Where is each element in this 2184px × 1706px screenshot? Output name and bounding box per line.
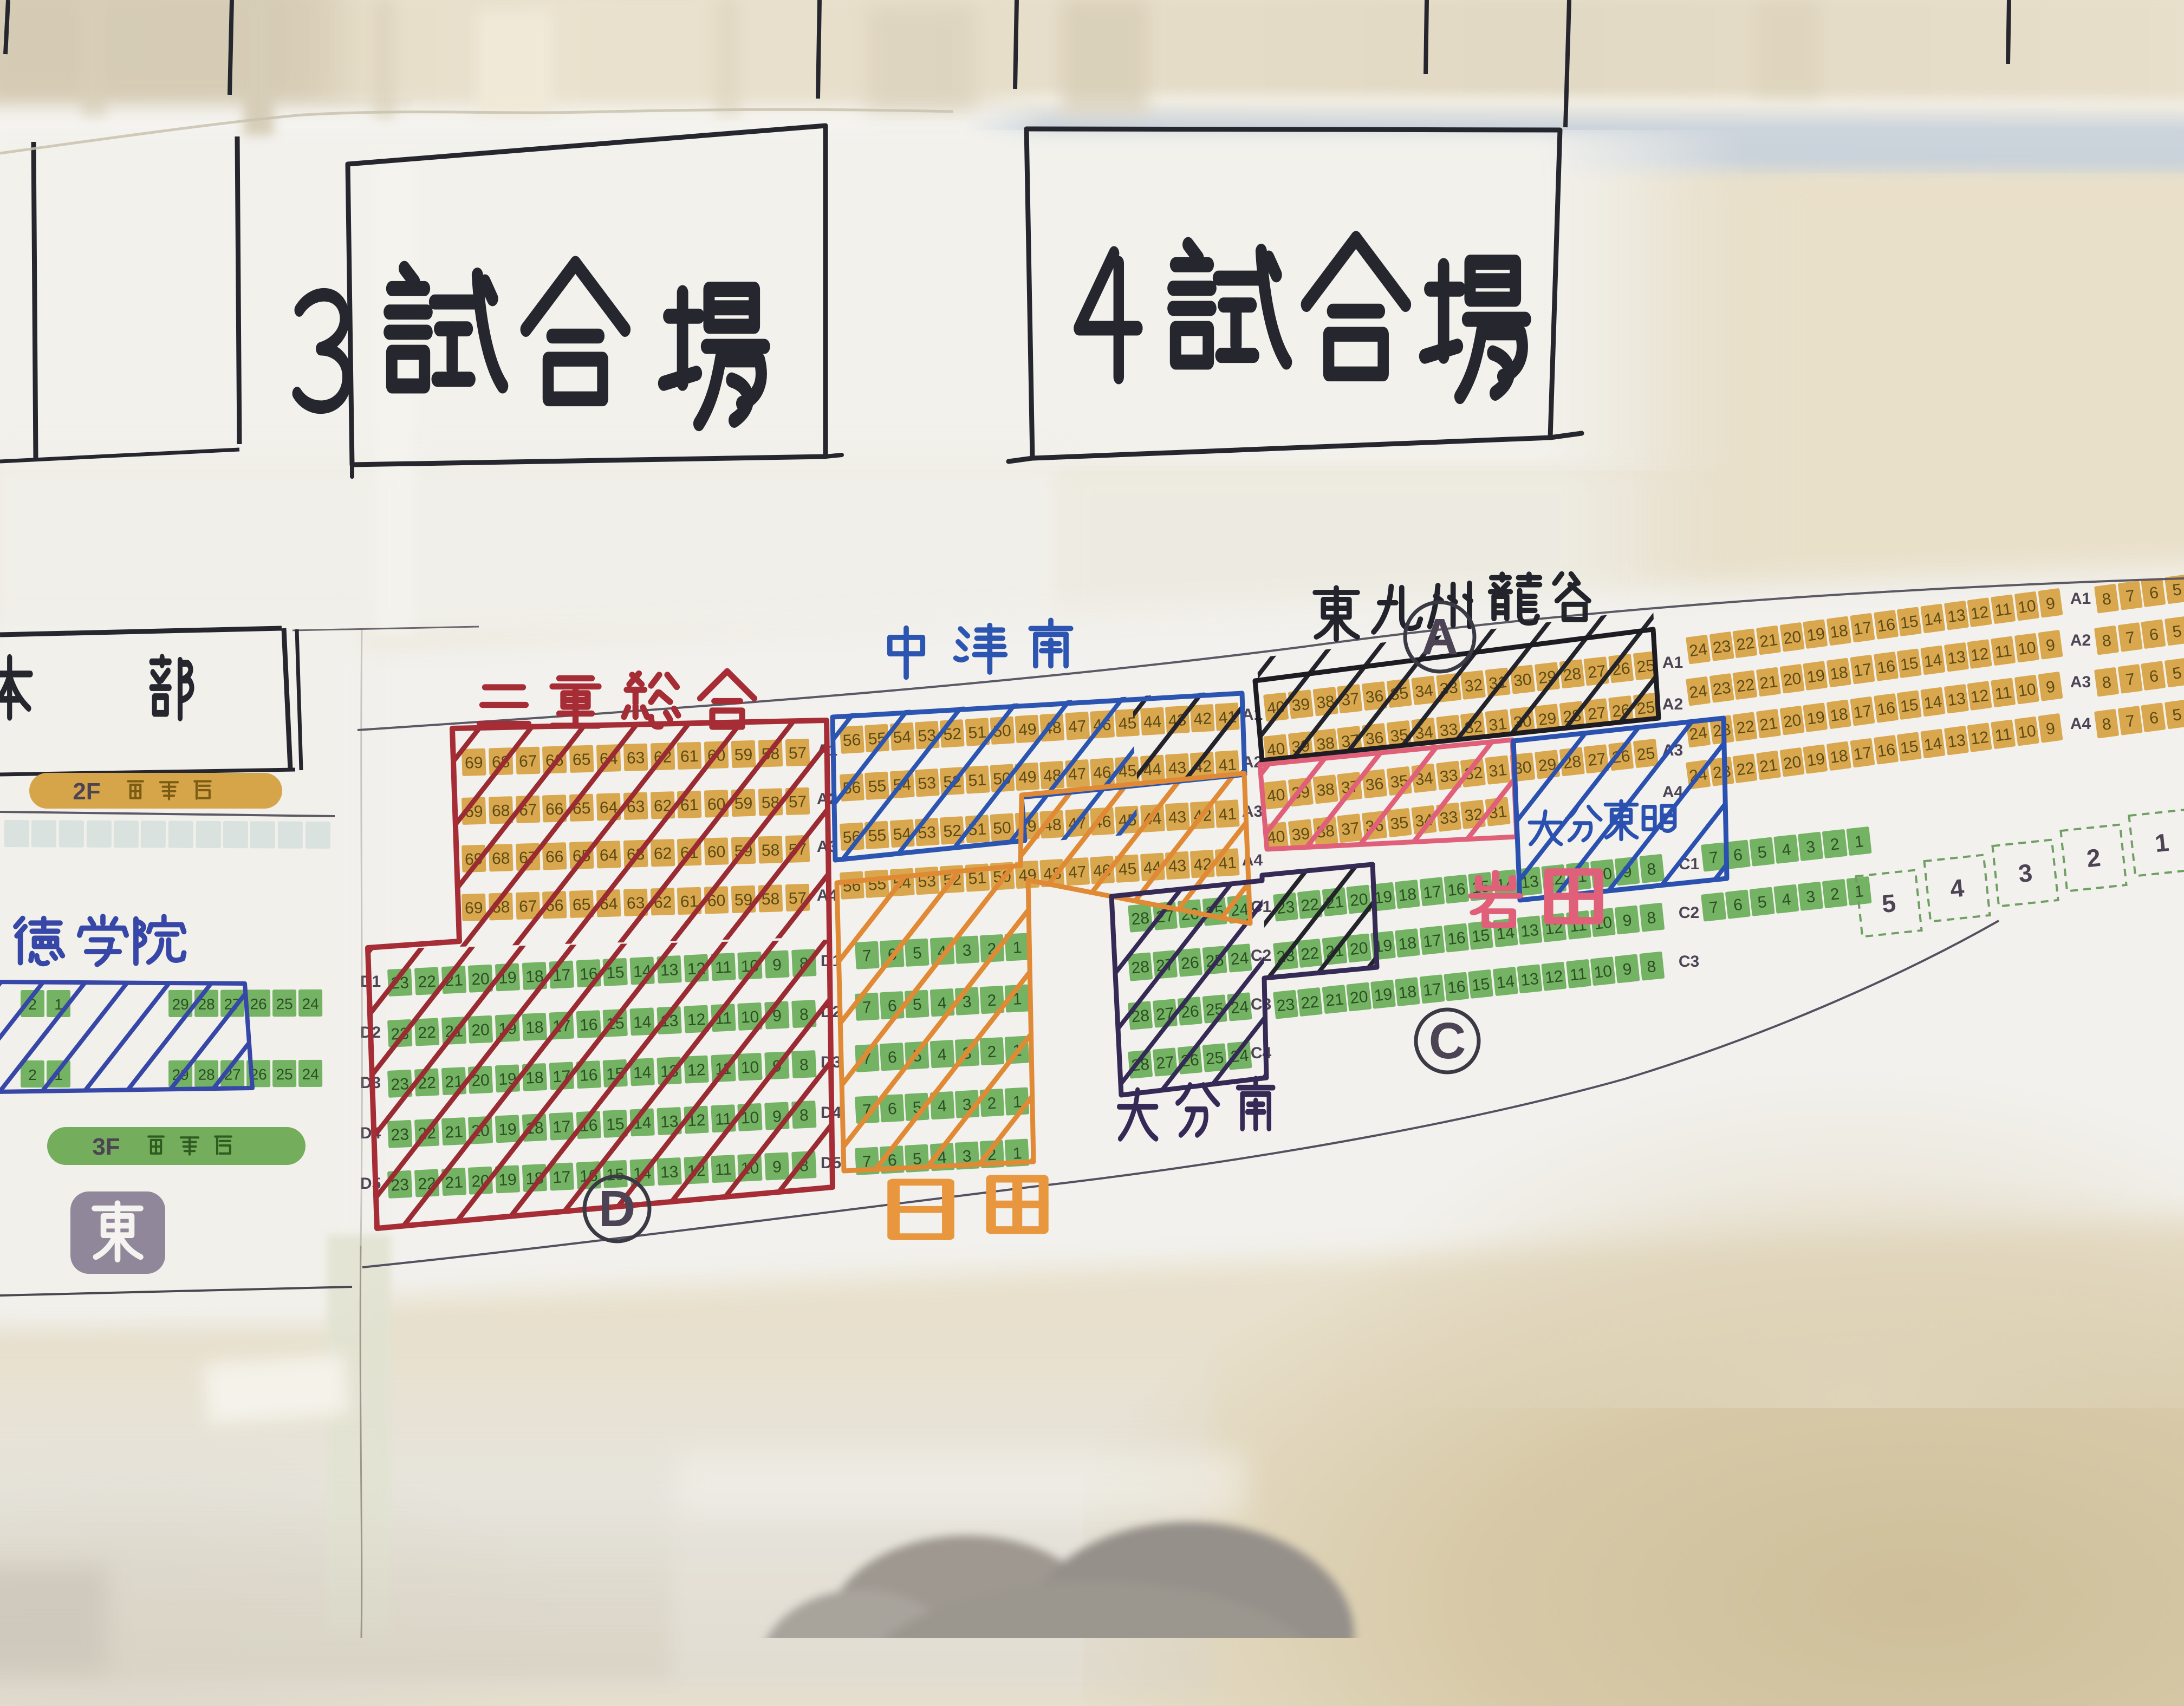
svg-text:2: 2 (28, 1066, 37, 1083)
svg-text:17: 17 (1852, 702, 1873, 722)
svg-text:15: 15 (1899, 696, 1919, 716)
svg-text:41: 41 (1218, 805, 1237, 824)
svg-text:32: 32 (1464, 676, 1484, 696)
svg-text:2F: 2F (73, 778, 100, 805)
svg-text:24: 24 (1688, 724, 1708, 744)
svg-text:51: 51 (967, 771, 986, 790)
svg-text:22: 22 (1300, 944, 1320, 963)
svg-text:21: 21 (1758, 756, 1778, 776)
svg-text:59: 59 (734, 746, 752, 764)
svg-text:17: 17 (1422, 883, 1442, 902)
svg-text:60: 60 (707, 843, 725, 861)
svg-text:39: 39 (1291, 825, 1311, 845)
svg-text:6: 6 (887, 1049, 897, 1067)
svg-text:11: 11 (1994, 600, 2013, 620)
svg-text:17: 17 (552, 1118, 571, 1137)
svg-text:29: 29 (1537, 709, 1557, 730)
svg-text:53: 53 (918, 774, 937, 793)
svg-text:16: 16 (1447, 880, 1467, 900)
svg-text:16: 16 (1876, 740, 1896, 760)
svg-text:13: 13 (660, 1112, 679, 1131)
svg-text:11: 11 (1994, 683, 2013, 704)
svg-text:21: 21 (1325, 991, 1345, 1010)
svg-text:8: 8 (799, 1056, 809, 1075)
svg-text:14: 14 (1923, 609, 1943, 629)
svg-text:66: 66 (545, 848, 564, 866)
svg-text:69: 69 (465, 899, 483, 917)
svg-text:11: 11 (1994, 642, 2013, 662)
svg-text:3F: 3F (92, 1134, 120, 1160)
svg-text:68: 68 (492, 802, 510, 820)
svg-text:27: 27 (1155, 1053, 1175, 1073)
svg-text:12: 12 (687, 1061, 706, 1080)
svg-text:13: 13 (660, 961, 679, 980)
svg-text:31: 31 (1488, 715, 1508, 735)
svg-text:11: 11 (1994, 725, 2013, 745)
svg-text:C: C (1429, 1012, 1466, 1070)
svg-text:8: 8 (799, 1006, 809, 1024)
svg-text:20: 20 (1782, 628, 1802, 648)
svg-text:D: D (599, 1180, 636, 1238)
svg-text:22: 22 (418, 973, 437, 992)
svg-text:9: 9 (1622, 911, 1633, 930)
svg-text:4: 4 (1949, 874, 1966, 903)
svg-text:24: 24 (1230, 949, 1249, 969)
svg-text:5: 5 (1881, 889, 1897, 918)
svg-text:4: 4 (937, 994, 947, 1013)
svg-text:16: 16 (579, 1015, 598, 1034)
svg-text:14: 14 (1923, 734, 1943, 754)
svg-text:37: 37 (1341, 819, 1361, 839)
svg-text:12: 12 (1969, 603, 1990, 623)
svg-text:21: 21 (1758, 714, 1778, 734)
svg-text:68: 68 (492, 849, 510, 868)
svg-text:10: 10 (2017, 680, 2037, 700)
svg-text:57: 57 (788, 744, 807, 763)
svg-text:18: 18 (1829, 663, 1849, 683)
svg-text:41: 41 (1218, 756, 1237, 774)
svg-text:57: 57 (788, 793, 807, 811)
svg-text:58: 58 (761, 841, 779, 859)
svg-text:7: 7 (862, 947, 872, 965)
svg-text:43: 43 (1168, 857, 1187, 876)
svg-text:19: 19 (498, 1121, 517, 1139)
svg-text:5: 5 (912, 995, 922, 1014)
svg-text:69: 69 (465, 754, 483, 772)
svg-text:18: 18 (525, 1069, 544, 1088)
svg-text:16: 16 (1447, 978, 1467, 997)
svg-text:20: 20 (1349, 890, 1369, 910)
svg-text:A2: A2 (1662, 695, 1683, 713)
svg-text:43: 43 (1168, 759, 1187, 778)
svg-text:17: 17 (1852, 744, 1873, 764)
svg-text:13: 13 (660, 1163, 679, 1182)
svg-text:12: 12 (687, 1011, 706, 1030)
svg-text:23: 23 (1712, 762, 1732, 782)
svg-text:A3: A3 (2070, 673, 2091, 691)
svg-text:39: 39 (1291, 695, 1311, 715)
svg-text:9: 9 (772, 1158, 782, 1176)
svg-text:35: 35 (1389, 813, 1409, 834)
svg-text:9: 9 (772, 956, 782, 974)
svg-text:38: 38 (1316, 780, 1336, 800)
svg-text:19: 19 (1806, 624, 1826, 644)
svg-text:22: 22 (1735, 634, 1756, 654)
svg-text:63: 63 (626, 894, 645, 913)
svg-text:17: 17 (1852, 660, 1873, 680)
svg-text:A4: A4 (2070, 715, 2091, 733)
svg-text:20: 20 (1782, 669, 1802, 689)
svg-text:4: 4 (937, 1097, 947, 1116)
svg-text:10: 10 (1593, 962, 1613, 982)
svg-text:36: 36 (1364, 687, 1384, 707)
svg-text:24: 24 (1688, 682, 1708, 702)
svg-text:13: 13 (1946, 606, 1966, 626)
svg-text:18: 18 (1829, 622, 1849, 642)
svg-text:10: 10 (740, 1058, 759, 1077)
svg-text:1: 1 (1012, 939, 1022, 957)
svg-text:18: 18 (1397, 934, 1418, 953)
svg-text:61: 61 (680, 747, 698, 766)
svg-text:66: 66 (545, 800, 564, 818)
svg-text:27: 27 (1587, 704, 1607, 724)
svg-text:27: 27 (1587, 750, 1607, 770)
svg-text:19: 19 (1806, 750, 1826, 770)
svg-text:C2: C2 (1679, 904, 1699, 922)
svg-text:18: 18 (1829, 705, 1849, 725)
svg-text:6: 6 (887, 1100, 897, 1118)
svg-text:33: 33 (1439, 766, 1459, 786)
svg-text:15: 15 (1471, 975, 1491, 994)
svg-text:13: 13 (1946, 731, 1966, 751)
svg-text:18: 18 (1397, 982, 1418, 1002)
svg-text:12: 12 (1544, 967, 1564, 987)
svg-text:14: 14 (633, 1064, 652, 1083)
svg-text:16: 16 (579, 1066, 598, 1085)
svg-text:56: 56 (842, 731, 861, 750)
svg-text:30: 30 (1513, 670, 1533, 691)
svg-text:45: 45 (1118, 860, 1137, 879)
svg-text:4: 4 (937, 1046, 947, 1064)
svg-text:33: 33 (1439, 720, 1459, 740)
svg-text:17: 17 (552, 1168, 571, 1187)
svg-text:29: 29 (172, 996, 188, 1013)
svg-text:19: 19 (1806, 708, 1826, 728)
svg-text:25: 25 (276, 995, 292, 1012)
svg-text:22: 22 (1300, 993, 1320, 1012)
svg-text:65: 65 (573, 896, 591, 914)
svg-text:15: 15 (1471, 926, 1491, 946)
svg-text:1: 1 (2154, 828, 2170, 857)
svg-text:24: 24 (302, 1066, 318, 1083)
svg-text:16: 16 (1876, 615, 1896, 635)
svg-text:49: 49 (1018, 768, 1037, 787)
svg-text:55: 55 (868, 826, 887, 845)
svg-text:12: 12 (1969, 687, 1990, 707)
svg-text:25: 25 (1636, 744, 1656, 764)
svg-text:13: 13 (1520, 970, 1540, 989)
svg-text:67: 67 (519, 752, 537, 771)
svg-text:19: 19 (498, 1171, 517, 1190)
svg-text:20: 20 (1782, 711, 1802, 731)
svg-text:17: 17 (1422, 932, 1442, 951)
svg-text:13: 13 (1946, 689, 1966, 709)
svg-text:24: 24 (1688, 640, 1708, 660)
svg-text:12: 12 (1969, 728, 1990, 748)
svg-text:8: 8 (799, 1106, 809, 1125)
svg-text:10: 10 (2017, 597, 2037, 617)
svg-text:10: 10 (2017, 722, 2037, 742)
svg-text:13: 13 (1520, 921, 1540, 941)
svg-text:14: 14 (1923, 693, 1943, 713)
svg-text:10: 10 (2017, 639, 2037, 659)
svg-text:23: 23 (1276, 995, 1296, 1015)
svg-text:67: 67 (519, 897, 537, 916)
svg-text:16: 16 (1876, 699, 1896, 719)
svg-text:C3: C3 (1251, 995, 1271, 1013)
svg-text:A: A (1421, 608, 1459, 666)
svg-text:22: 22 (1300, 895, 1320, 915)
svg-text:8: 8 (1646, 958, 1657, 976)
svg-text:63: 63 (626, 749, 645, 767)
svg-text:16: 16 (1876, 657, 1896, 677)
svg-text:7: 7 (862, 998, 872, 1017)
svg-text:9: 9 (1622, 960, 1633, 979)
svg-text:22: 22 (418, 1024, 437, 1043)
svg-text:3: 3 (2017, 858, 2034, 888)
svg-text:8: 8 (1646, 909, 1657, 928)
svg-text:20: 20 (1349, 939, 1369, 959)
svg-text:42: 42 (1193, 709, 1212, 728)
svg-text:62: 62 (653, 844, 672, 863)
svg-text:19: 19 (1806, 666, 1826, 686)
svg-text:34: 34 (1414, 681, 1434, 701)
svg-text:2: 2 (987, 1043, 997, 1062)
svg-text:22: 22 (1735, 676, 1756, 696)
svg-text:23: 23 (1712, 637, 1732, 657)
svg-text:18: 18 (1397, 885, 1418, 904)
svg-text:20: 20 (1349, 988, 1369, 1007)
svg-text:47: 47 (1068, 717, 1087, 736)
svg-text:18: 18 (525, 1018, 544, 1037)
svg-text:15: 15 (1899, 613, 1919, 633)
svg-text:5: 5 (912, 944, 922, 962)
svg-text:25: 25 (276, 1066, 292, 1083)
svg-text:3: 3 (962, 941, 972, 960)
svg-text:C3: C3 (1679, 953, 1699, 971)
svg-text:22: 22 (1735, 718, 1756, 738)
svg-text:52: 52 (943, 822, 962, 841)
svg-text:23: 23 (1712, 679, 1732, 699)
svg-text:55: 55 (868, 777, 887, 796)
svg-text:43: 43 (1168, 808, 1187, 827)
svg-text:40: 40 (1266, 786, 1286, 806)
svg-text:8: 8 (1646, 860, 1657, 879)
svg-text:49: 49 (1018, 720, 1037, 739)
svg-text:2: 2 (2085, 843, 2102, 872)
svg-text:24: 24 (302, 995, 318, 1012)
svg-text:44: 44 (1143, 713, 1162, 732)
svg-text:23: 23 (391, 1125, 409, 1144)
svg-text:A1: A1 (2070, 590, 2091, 608)
svg-text:21: 21 (445, 1173, 464, 1192)
svg-text:11: 11 (714, 958, 732, 976)
svg-text:2: 2 (987, 992, 997, 1010)
svg-text:12: 12 (1969, 645, 1990, 665)
svg-text:20: 20 (471, 1021, 490, 1040)
svg-text:2: 2 (987, 1095, 997, 1113)
svg-text:11: 11 (714, 1160, 732, 1178)
svg-text:14: 14 (1923, 651, 1943, 671)
svg-text:15: 15 (606, 1115, 625, 1134)
svg-text:18: 18 (1829, 747, 1849, 767)
svg-text:14: 14 (1496, 972, 1516, 992)
svg-text:20: 20 (471, 970, 490, 989)
svg-text:14: 14 (633, 1013, 652, 1032)
svg-text:26: 26 (250, 995, 266, 1012)
svg-text:28: 28 (198, 1066, 214, 1083)
svg-text:A1: A1 (1662, 654, 1683, 672)
svg-text:64: 64 (599, 846, 617, 864)
svg-text:17: 17 (1852, 618, 1873, 639)
svg-text:36: 36 (1364, 774, 1384, 795)
svg-text:31: 31 (1488, 761, 1508, 781)
svg-text:A2: A2 (2070, 631, 2091, 649)
svg-text:33: 33 (1439, 808, 1459, 828)
svg-text:19: 19 (1373, 985, 1393, 1005)
svg-text:16: 16 (1447, 929, 1467, 948)
svg-text:28: 28 (1130, 958, 1150, 978)
svg-text:13: 13 (1946, 648, 1966, 668)
svg-text:28: 28 (1130, 909, 1150, 929)
svg-text:65: 65 (573, 751, 591, 769)
svg-text:11: 11 (1569, 965, 1587, 984)
svg-text:15: 15 (1899, 654, 1919, 674)
svg-text:15: 15 (1899, 738, 1919, 758)
svg-text:26: 26 (1180, 954, 1200, 973)
svg-text:17: 17 (1422, 980, 1442, 1000)
svg-text:50: 50 (992, 819, 1011, 838)
svg-text:22: 22 (1735, 759, 1756, 779)
svg-text:10: 10 (740, 1008, 759, 1027)
svg-text:25: 25 (1205, 1049, 1225, 1069)
svg-text:47: 47 (1068, 863, 1087, 882)
svg-text:54: 54 (893, 728, 912, 747)
svg-text:21: 21 (1758, 631, 1778, 651)
svg-text:51: 51 (967, 724, 986, 743)
svg-text:21: 21 (445, 1123, 464, 1142)
svg-text:20: 20 (1782, 753, 1802, 773)
svg-text:21: 21 (1758, 673, 1778, 693)
